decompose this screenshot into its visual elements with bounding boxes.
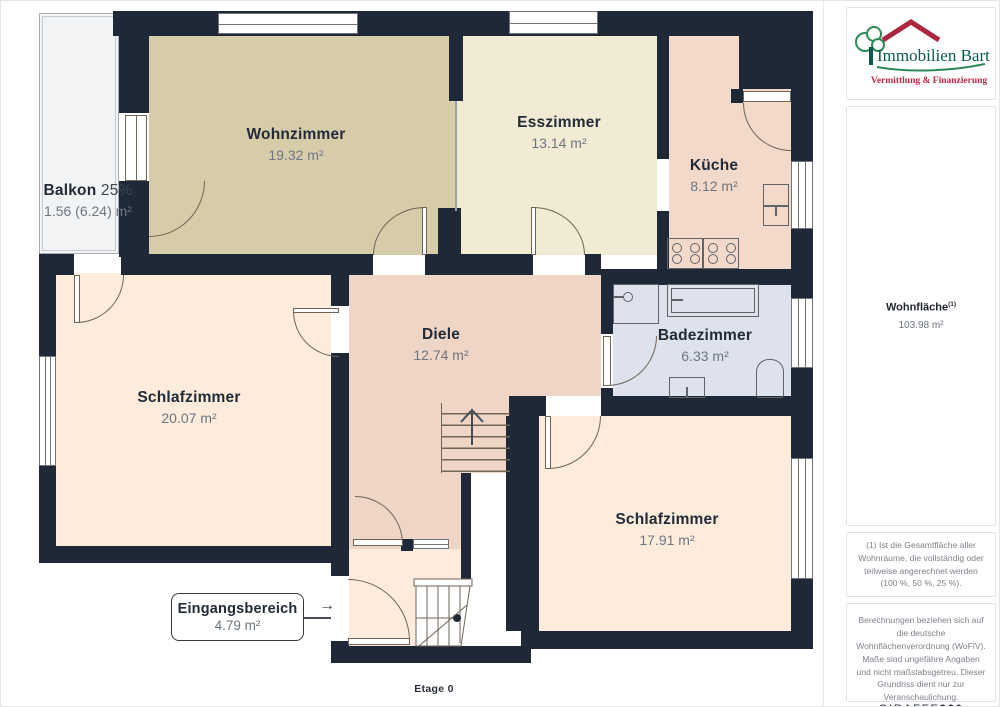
stove <box>703 238 739 269</box>
room-label-schlafzimmer-1: Schlafzimmer20.07 m² <box>137 389 240 426</box>
wall <box>449 36 463 101</box>
room-divider-line <box>455 101 457 211</box>
wall <box>506 416 539 631</box>
disclaimer-panel: Berechnungen beziehen sich auf die deuts… <box>846 603 996 702</box>
living-area-summary: Wohnfläche(1) 103.98 m² <box>846 106 996 526</box>
window <box>791 161 813 229</box>
kitchen-door-leaf <box>743 91 791 102</box>
wall <box>601 388 613 396</box>
burner <box>726 243 736 253</box>
room-label-schlafzimmer-2: Schlafzimmer17.91 m² <box>615 511 718 548</box>
wall <box>585 254 601 275</box>
burner <box>672 243 682 253</box>
entry-arrow-icon: → <box>319 597 335 615</box>
svg-text:Immobilien Bart: Immobilien Bart <box>877 46 990 65</box>
burner <box>690 243 700 253</box>
footnote-panel: (1) Ist die Gesamtfläche aller Wohnräume… <box>846 532 996 597</box>
floor-label: Etage 0 <box>414 683 453 695</box>
window <box>509 11 598 34</box>
living-area-value: 103.98 m² <box>898 320 943 331</box>
wall <box>791 89 813 161</box>
wall <box>657 36 669 159</box>
wall <box>425 254 533 275</box>
wall <box>731 89 743 103</box>
brand-logo-panel: Immobilien Bart Vermittlung & Finanzieru… <box>846 7 996 100</box>
kitchen-sink-tick <box>775 205 777 216</box>
wall <box>438 208 461 255</box>
floorplan-page: Wohnzimmer19.32 m² Esszimmer13.14 m² Küc… <box>0 0 1000 707</box>
callout-leader-line <box>304 617 331 619</box>
bathtub-faucet <box>671 299 683 301</box>
wall <box>331 641 349 663</box>
disclaimer-text: Berechnungen beziehen sich auf die deuts… <box>855 614 987 704</box>
staircase-lower-flight <box>411 577 475 649</box>
eingangsbereich-callout: Eingangsbereich 4.79 m² <box>171 593 304 641</box>
balcony-door-leaf <box>125 115 147 181</box>
room-diele <box>349 275 601 396</box>
wall <box>39 466 56 546</box>
room-label-diele: Diele12.74 m² <box>413 326 468 363</box>
room-label-balkon: Balkon 25% 1.56 (6.24) m² <box>43 182 132 219</box>
wall <box>521 631 813 649</box>
shower-line <box>613 296 623 298</box>
wall <box>461 473 471 584</box>
burner <box>726 254 736 264</box>
window <box>791 458 813 579</box>
shower-drain <box>623 292 633 302</box>
window <box>413 539 449 549</box>
room-label-esszimmer: Esszimmer13.14 m² <box>517 114 601 151</box>
company-logo: Immobilien Bart Vermittlung & Finanzieru… <box>851 13 991 95</box>
window <box>218 13 358 34</box>
room-label-badezimmer: Badezimmer6.33 m² <box>658 327 752 364</box>
sink-line <box>686 387 688 398</box>
window <box>39 356 56 466</box>
wall <box>509 396 546 416</box>
wall <box>119 11 149 113</box>
sidebar-divider <box>823 1 824 707</box>
burner <box>708 243 718 253</box>
wall <box>791 229 813 298</box>
wall <box>739 11 813 89</box>
wall <box>601 269 813 285</box>
room-label-kueche: Küche8.12 m² <box>690 157 738 194</box>
svg-text:Vermittlung & Finanzierung: Vermittlung & Finanzierung <box>871 76 988 86</box>
burner <box>672 254 682 264</box>
wall <box>601 396 813 416</box>
wall <box>39 254 56 356</box>
wall <box>331 353 349 546</box>
living-area-label: Wohnfläche(1) <box>886 301 956 314</box>
wall <box>331 254 349 306</box>
roof-icon <box>883 22 939 40</box>
shower <box>613 284 659 324</box>
stairwell-void <box>471 473 506 646</box>
footnote-1: (1) Ist die Gesamtfläche aller Wohnräume… <box>856 539 986 591</box>
window <box>791 298 813 368</box>
stove <box>667 238 703 269</box>
wall <box>331 546 349 576</box>
bathtub <box>667 284 759 317</box>
burner <box>708 254 718 264</box>
wall <box>601 275 613 334</box>
burner <box>690 254 700 264</box>
wall <box>113 11 739 36</box>
toilet <box>756 359 784 398</box>
stairs-up-arrow-icon <box>456 405 488 451</box>
room-label-wohnzimmer: Wohnzimmer19.32 m² <box>246 126 345 163</box>
wall <box>39 546 349 563</box>
